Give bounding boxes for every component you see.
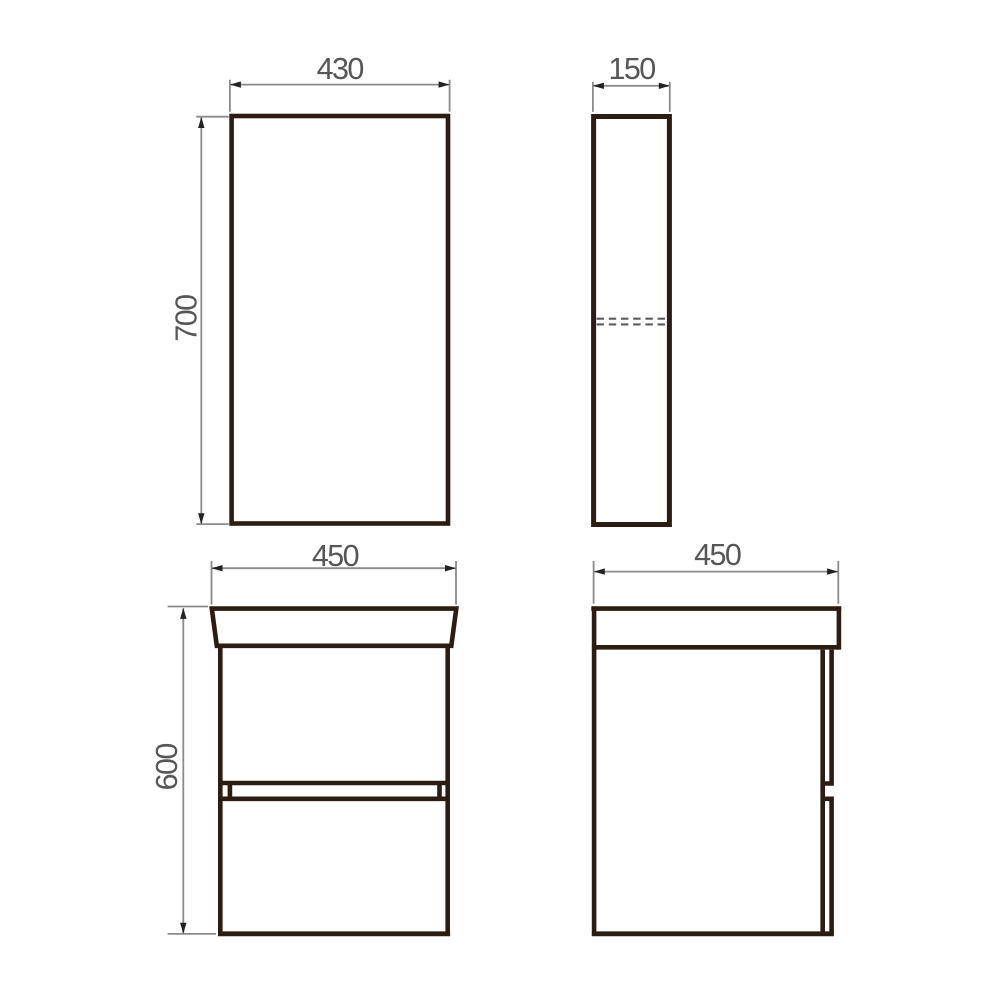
svg-text:150: 150: [609, 52, 656, 86]
svg-text:450: 450: [312, 539, 359, 573]
svg-text:430: 430: [317, 52, 364, 86]
svg-text:450: 450: [694, 538, 741, 572]
svg-text:600: 600: [150, 744, 184, 791]
svg-text:700: 700: [169, 295, 203, 342]
